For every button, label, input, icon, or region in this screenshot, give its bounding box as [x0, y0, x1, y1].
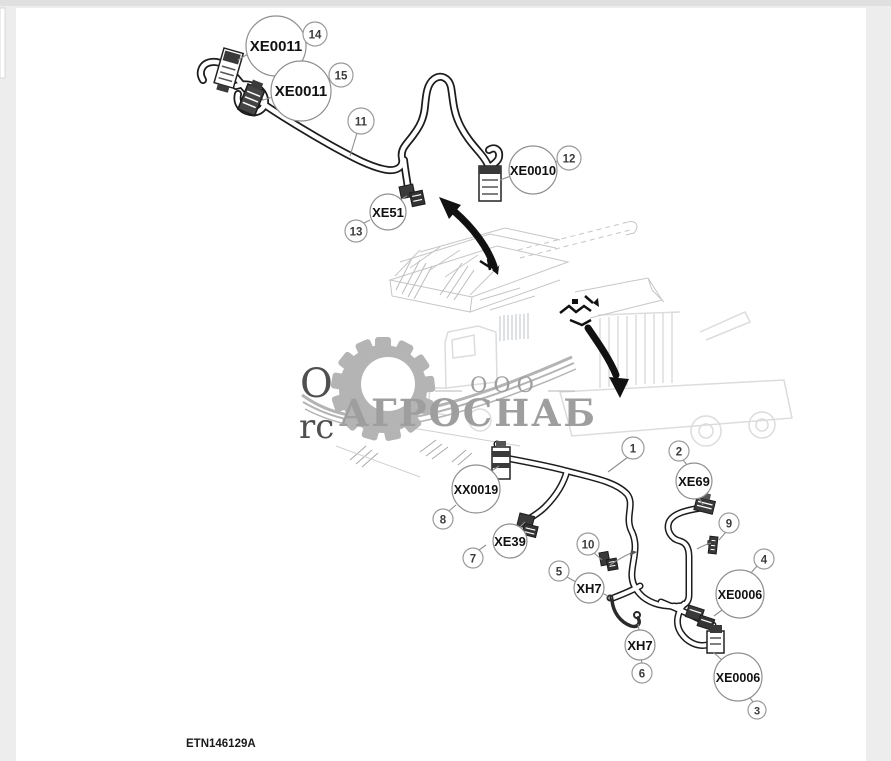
svg-text:XE51: XE51	[372, 205, 404, 220]
balloon-14: 14	[303, 22, 327, 46]
figure-code: ETN146129A	[186, 738, 256, 750]
svg-text:10: 10	[582, 540, 595, 552]
watermark-company-name: АГРОСНАБ	[339, 391, 597, 435]
svg-text:2: 2	[676, 447, 682, 459]
svg-text:XE0006: XE0006	[716, 671, 761, 685]
callout-xe51-13: XE51	[370, 194, 406, 230]
svg-text:XX0019: XX0019	[454, 483, 499, 497]
balloon-10: 10	[577, 533, 599, 555]
connector-xe0010	[479, 166, 501, 201]
svg-text:8: 8	[440, 515, 447, 527]
svg-text:12: 12	[563, 154, 576, 166]
callout-xe0006-3: XE0006	[714, 653, 762, 701]
svg-text:9: 9	[726, 519, 732, 531]
svg-text:4: 4	[761, 555, 768, 567]
balloon-2: 2	[669, 441, 689, 461]
svg-text:3: 3	[754, 706, 760, 718]
document-page	[16, 8, 866, 761]
callout-xh7-5: XH7	[574, 573, 604, 603]
balloon-15: 15	[329, 63, 353, 87]
callout-xe39-7: XE39	[493, 524, 527, 558]
balloon-3: 3	[748, 701, 766, 719]
balloon-5: 5	[549, 561, 569, 581]
svg-text:6: 6	[639, 669, 645, 681]
svg-text:XH7: XH7	[576, 581, 601, 596]
callout-xe0006-4: XE0006	[716, 570, 764, 618]
svg-text:13: 13	[350, 227, 363, 239]
svg-text:XE0006: XE0006	[718, 588, 763, 602]
balloon-9: 9	[719, 513, 739, 533]
svg-text:XE0011: XE0011	[275, 83, 328, 100]
svg-text:XH7: XH7	[627, 638, 652, 653]
callout-xe0010-12: XE0010	[509, 146, 557, 194]
balloon-4: 4	[754, 549, 774, 569]
balloon-1: 1	[622, 437, 644, 459]
svg-text:XE69: XE69	[678, 474, 710, 489]
callout-xx0019-8: XX0019	[452, 465, 500, 513]
svg-text:7: 7	[470, 554, 476, 566]
top-band	[0, 0, 891, 6]
callout-xe69-2: XE69	[676, 463, 712, 499]
svg-text:14: 14	[309, 30, 322, 42]
svg-text:O: O	[300, 361, 333, 407]
previous-page-edge	[0, 8, 5, 78]
balloon-7: 7	[463, 548, 483, 568]
balloon-12: 12	[557, 146, 581, 170]
svg-text:XE39: XE39	[494, 534, 526, 549]
balloon-8: 8	[433, 509, 453, 529]
svg-text:5: 5	[556, 567, 563, 579]
svg-text:11: 11	[355, 117, 368, 129]
balloon-6: 6	[632, 663, 652, 683]
callout-xe0011-15: XE0011	[271, 61, 331, 121]
callout-xh7-6: XH7	[625, 630, 655, 660]
svg-text:XE0011: XE0011	[250, 38, 303, 55]
balloon-11: 11	[348, 108, 374, 134]
svg-text:1: 1	[630, 444, 637, 456]
svg-text:15: 15	[335, 71, 348, 83]
balloon-13: 13	[345, 220, 367, 242]
svg-text:XE0010: XE0010	[510, 163, 556, 178]
parts-diagram-page: O rc	[0, 0, 891, 761]
